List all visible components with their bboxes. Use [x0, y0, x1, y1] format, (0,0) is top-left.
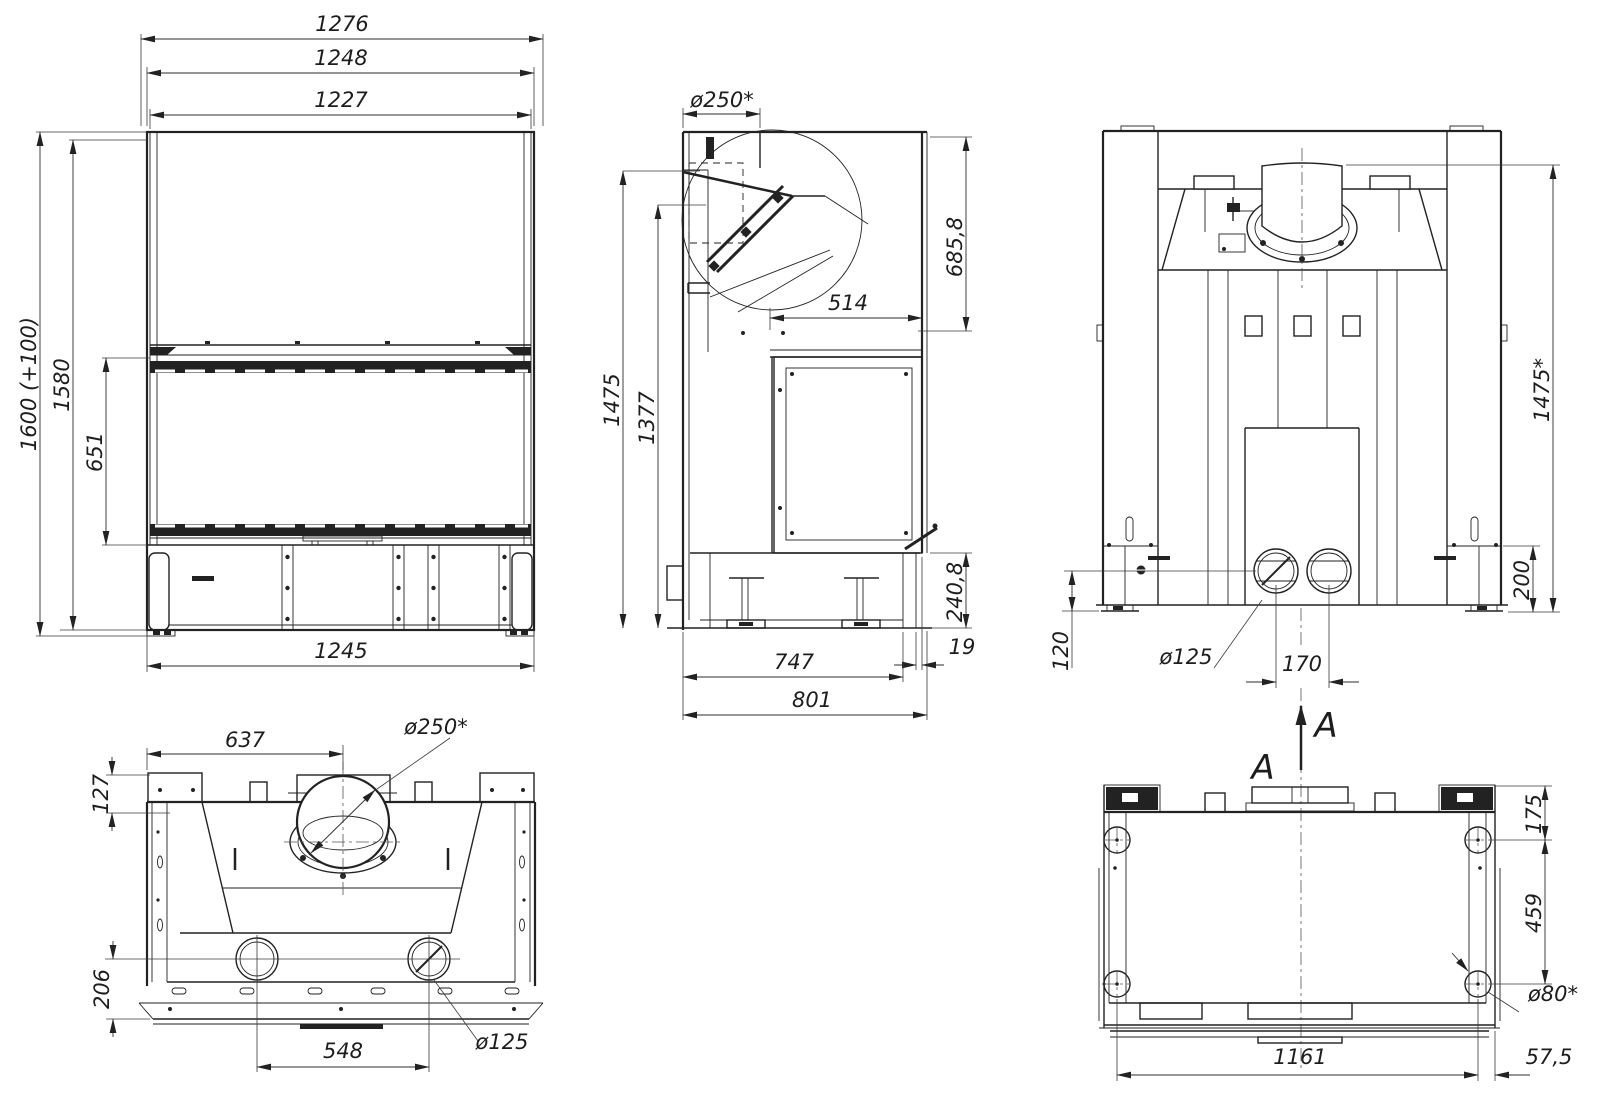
damper-plate	[707, 186, 793, 272]
dim-label-front-overall-height: 1600 (+100)	[17, 317, 41, 451]
front-dimensions: 1276 1248 1227 1245 1600 (+100) 1580 651	[17, 12, 543, 672]
dim-label-top-flue-center-offset: 637	[225, 728, 266, 752]
dim-label-side-flue-diameter: ø250*	[689, 88, 753, 112]
dim-label-top-rear-depth: 206	[90, 969, 114, 1009]
dim-label-rear-inlet-spacing: 170	[1282, 652, 1322, 676]
rear-structure	[1096, 126, 1508, 611]
dim-label-bottom-foot-inset-width: 57,5	[1526, 1045, 1573, 1069]
dim-label-rear-base-height: 200	[1510, 560, 1534, 600]
dim-label-side-depth-overall: 801	[792, 688, 832, 712]
dim-label-front-overall-width: 1276	[315, 12, 368, 36]
dim-label-rear-inlet-center-height: 120	[1049, 631, 1073, 671]
dim-label-front-body-height: 1580	[50, 358, 74, 411]
side-dimensions: ø250* 685,8 514 1475 1377 240,8 19 747	[600, 88, 975, 720]
rear-view: 1475* 200 120 ø125 170	[1049, 126, 1560, 688]
dim-label-rear-inlet-diameter: ø125	[1159, 645, 1213, 669]
foot-holes	[1103, 827, 1492, 997]
section-letter-upper: A	[1312, 706, 1337, 746]
dim-label-front-mid-width: 1248	[314, 46, 367, 70]
front-view: 1276 1248 1227 1245 1600 (+100) 1580 651	[17, 12, 543, 672]
drawing-canvas: 1276 1248 1227 1245 1600 (+100) 1580 651	[0, 0, 1603, 1103]
bottom-view: 175 459 ø80* 1161 57,5	[1099, 785, 1578, 1081]
side-structure	[667, 130, 938, 630]
dim-label-top-inlet-spacing: 548	[323, 1039, 363, 1063]
dim-label-side-rear-offset: 19	[949, 635, 976, 659]
base-bolts	[285, 555, 506, 621]
dim-label-rear-height-total: 1475*	[1530, 358, 1554, 422]
dim-label-top-flue-diameter: ø250*	[403, 715, 467, 739]
side-door-panel	[774, 357, 922, 553]
side-view: ø250* 685,8 514 1475 1377 240,8 19 747	[600, 88, 975, 720]
dim-label-bottom-foot-span-width: 1161	[1273, 1045, 1326, 1069]
dim-label-side-base-height: 240,8	[943, 562, 967, 622]
dim-label-front-base-width: 1245	[314, 639, 367, 663]
drawing-sheet: 1276 1248 1227 1245 1600 (+100) 1580 651	[0, 0, 1603, 1103]
dim-label-side-top-depth: 514	[828, 291, 868, 315]
top-structure	[139, 762, 543, 1029]
dim-label-side-depth-base: 747	[774, 650, 815, 674]
dim-label-top-inlet-diameter: ø125	[475, 1030, 529, 1054]
dim-label-side-height-inner: 1377	[635, 391, 659, 445]
dim-label-front-glass-width: 1227	[314, 88, 368, 112]
front-structure	[147, 132, 534, 636]
dim-label-bottom-foot-diameter: ø80*	[1527, 982, 1578, 1006]
damper-pivot	[706, 137, 714, 159]
dim-label-front-glass-height: 651	[83, 432, 107, 472]
dim-label-bottom-foot-inset-depth: 175	[1522, 794, 1546, 834]
section-letter-lower: A	[1249, 748, 1274, 788]
dim-label-side-height-total: 1475	[600, 373, 624, 426]
glass-latch	[303, 536, 382, 541]
dim-label-bottom-foot-span-depth: 459	[1522, 893, 1546, 933]
bottom-structure	[1099, 785, 1500, 1043]
top-view: 637 ø250* 127 206 548 ø125	[89, 715, 543, 1072]
dim-label-top-front-depth: 127	[89, 773, 113, 814]
damper-actuator	[1219, 197, 1254, 252]
dim-label-side-back-top-height: 685,8	[943, 217, 967, 277]
